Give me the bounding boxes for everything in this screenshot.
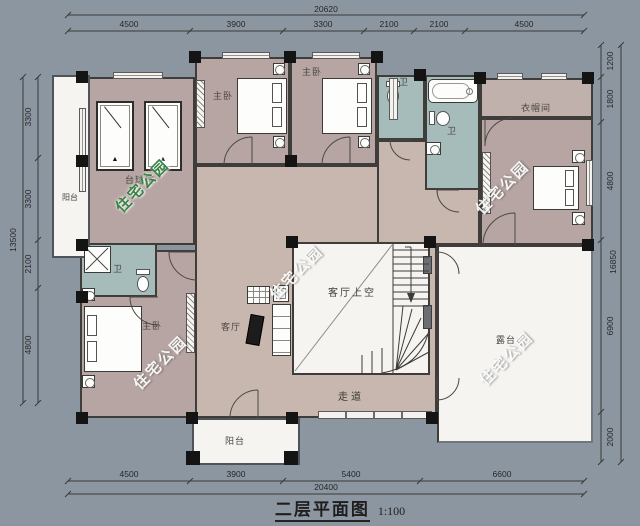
drawing-title: 二层平面图 [275,500,370,522]
room-label-bath-lower: 卫 [108,262,128,275]
column [284,451,298,465]
dim-label: 4800 [605,151,615,211]
column [76,239,88,251]
room-label-living-room: 客厅 [211,320,251,333]
dim-label: 3300 [293,19,353,29]
dim-label: 3900 [206,19,266,29]
dim-label: 16850 [608,232,618,292]
column [286,236,298,248]
column [76,412,88,424]
dim-label: 4500 [99,19,159,29]
dim-label: 2100 [23,234,33,294]
column [371,51,383,63]
dim-label: 3900 [206,469,266,479]
column [474,72,486,84]
column [426,412,438,424]
room-label-bedroom-2: 主卧 [292,65,332,78]
drawing-title-block: 二层平面图1:100 [210,495,470,520]
room-label-living-void: 客厅上空 [327,284,377,299]
dim-label: 2000 [605,407,615,467]
room-label-bedroom-lower: 主卧 [132,319,172,332]
drawing-scale: 1:100 [378,504,405,518]
column [582,239,594,251]
dim-label: 4800 [23,315,33,375]
room-label-bath-large: 卫 [442,124,462,137]
room-label-bedroom-1: 主卧 [203,89,243,102]
dim-label: 20400 [296,482,356,492]
room-label-bottom-balcony: 阳台 [213,434,257,447]
room-label-left-balcony: 阳台 [50,192,90,203]
column [186,451,200,465]
floor-plan-canvas: ▲ ▲ [0,0,640,526]
column [284,51,296,63]
dim-label: 20620 [296,4,356,14]
column [414,69,426,81]
dim-label: 13500 [8,210,18,270]
room-label-cloakroom: 衣帽间 [511,101,561,114]
column [189,51,201,63]
dim-label: 5400 [321,469,381,479]
dim-label: 2100 [409,19,469,29]
dim-label: 4500 [494,19,554,29]
dim-label: 4500 [99,469,159,479]
room-label-corridor: 走道 [331,388,371,403]
stair-direction-arrow-icon [407,293,415,303]
column [186,412,198,424]
dim-label: 6900 [605,296,615,356]
column [424,236,436,248]
dim-label: 3300 [23,169,33,229]
column [285,155,297,167]
dim-label: 1800 [605,69,615,129]
column [76,155,88,167]
dim-label: 3300 [23,87,33,147]
column [76,291,88,303]
column [582,72,594,84]
column [76,71,88,83]
dim-label: 6600 [472,469,532,479]
column [286,412,298,424]
room-label-bath-small: 卫 [394,75,414,88]
